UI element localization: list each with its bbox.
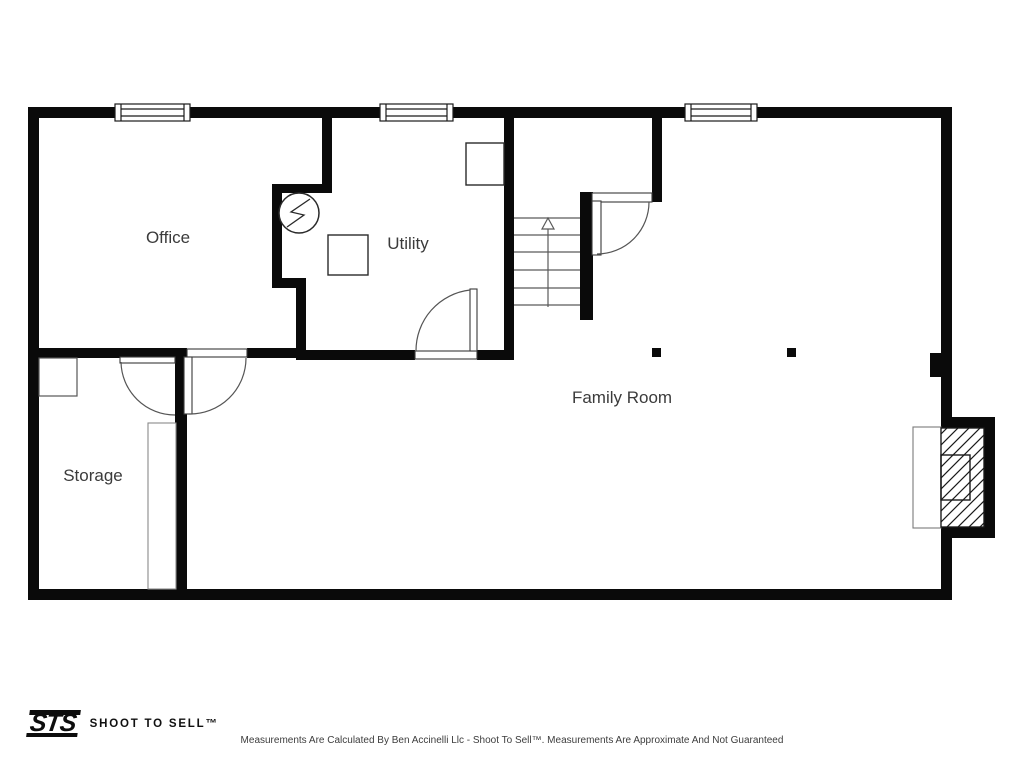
- up-arrow-icon: [542, 218, 554, 229]
- branding: STS SHOOT TO SELL™: [28, 710, 219, 737]
- utility-appliance: [466, 143, 504, 185]
- support-post: [787, 348, 796, 357]
- utility-south-wall-left: [296, 350, 415, 360]
- wall-bottom: [28, 589, 952, 600]
- utility-east-wall: [504, 112, 514, 360]
- fireplace-bump-right-wall: [984, 417, 995, 538]
- stair-side-wall: [580, 192, 593, 320]
- fireplace-bump-bottom-wall: [941, 527, 995, 538]
- room-label-office: Office: [146, 228, 190, 247]
- office-east-wall-lower: [272, 184, 282, 288]
- utility-west-wall: [296, 278, 306, 360]
- storage-wall-ledge: [148, 423, 176, 589]
- storage-corner-shelf: [39, 358, 77, 396]
- office-east-wall-upper: [322, 112, 332, 193]
- furnace: [328, 235, 368, 275]
- room-label-utility: Utility: [387, 234, 429, 253]
- room-label-storage: Storage: [63, 466, 123, 485]
- brand-name: SHOOT TO SELL™: [90, 718, 219, 730]
- floor-plan: Office Utility Family Room Storage: [0, 0, 1024, 768]
- measurement-disclaimer: Measurements Are Calculated By Ben Accin…: [0, 735, 1024, 746]
- sts-logo-icon: STS: [26, 710, 80, 737]
- wall-pilaster: [930, 353, 941, 377]
- stairs-top-door: [592, 193, 652, 255]
- firebox-hatch: [941, 428, 984, 527]
- interior-walls: [28, 112, 662, 589]
- storage-north-wall-right: [247, 348, 306, 358]
- window-1: [115, 104, 190, 121]
- stair-room-east-wall: [652, 112, 662, 202]
- hearth: [913, 427, 941, 528]
- fireplace: [913, 427, 984, 528]
- window-3: [685, 104, 757, 121]
- doors: [120, 193, 652, 415]
- stairs: [514, 218, 580, 307]
- room-label-family-room: Family Room: [572, 388, 672, 407]
- support-post: [652, 348, 661, 357]
- storage-door: [120, 357, 175, 415]
- family-room-door: [184, 349, 247, 414]
- wall-right-upper: [941, 107, 952, 428]
- window-2: [380, 104, 453, 121]
- utility-door: [415, 289, 477, 359]
- water-heater-icon: [279, 193, 319, 233]
